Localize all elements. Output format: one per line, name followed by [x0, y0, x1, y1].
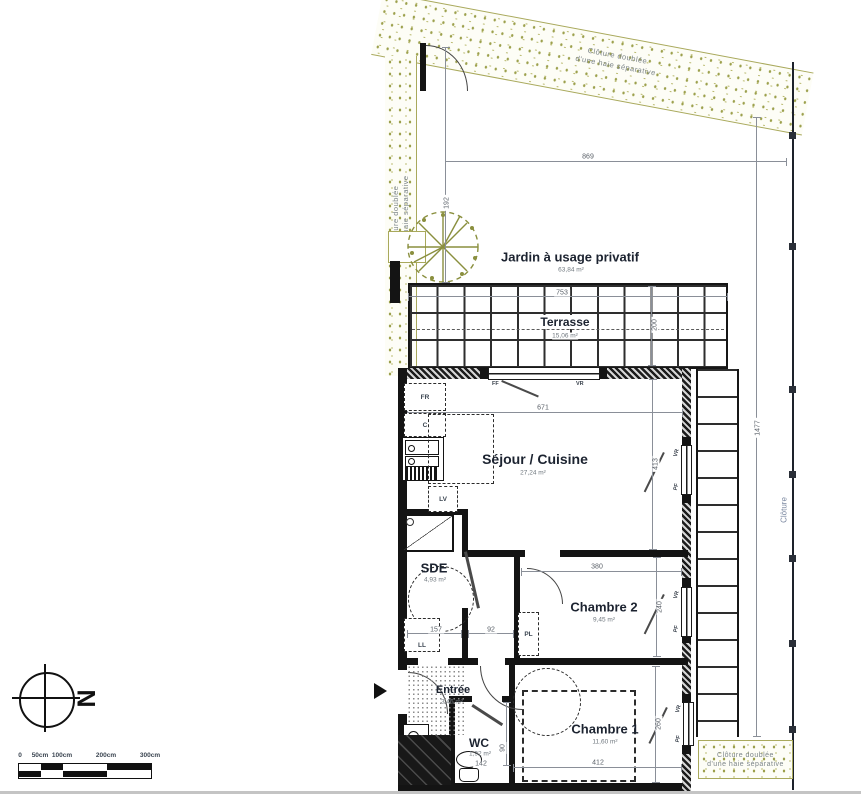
- terrace-centerline: [412, 329, 724, 330]
- wall-right-4: [682, 748, 691, 792]
- compass-circle: [19, 672, 75, 728]
- chambre2-label: Chambre 2: [570, 600, 637, 615]
- sde-label: SDE: [421, 561, 448, 576]
- garden-label: Jardin à usage privatif: [501, 250, 639, 265]
- bay-window-label-ff: FF: [492, 381, 499, 387]
- bay-window-swing: [501, 380, 539, 397]
- fridge-label: FR: [421, 394, 430, 401]
- scale-tick: 0: [18, 752, 22, 759]
- wc-door-leaf: [471, 704, 503, 726]
- entrance-arrow-icon: [374, 683, 387, 699]
- window-jamb: [682, 745, 691, 754]
- cooker-label: C: [423, 422, 428, 429]
- window-label-vr: VR: [673, 449, 681, 458]
- shower-drain: [406, 518, 414, 526]
- fence-post: [789, 555, 796, 562]
- north-letter: N: [71, 689, 100, 707]
- sink-tap-2: [408, 458, 415, 465]
- right-fence-line: [792, 62, 794, 790]
- wall-right-3: [682, 637, 691, 700]
- scale-bar-frame: [18, 763, 152, 779]
- window-jamb: [682, 578, 691, 587]
- bottom-hedge-label-2: d'une haie séparative: [707, 760, 784, 769]
- chambre2-area: 9,45 m²: [593, 617, 615, 624]
- dim-sejour-width: 671: [535, 405, 551, 412]
- window-sejour-east: [681, 445, 692, 495]
- fence-post: [789, 726, 796, 733]
- dim-sejour-width-line: [407, 412, 683, 413]
- dim-ch2-width-line: [521, 571, 682, 572]
- closet-label: PL: [524, 631, 532, 638]
- dim-ch2-width: 380: [589, 564, 605, 571]
- wall-right-2: [682, 495, 691, 587]
- window-chambre1: [683, 702, 694, 746]
- dim-site-height: 1477: [755, 418, 762, 438]
- side-path-tiles: [696, 369, 739, 737]
- window-label-pf: PF: [673, 483, 681, 491]
- wall-hall-south-mid: [448, 658, 478, 665]
- scale-tick: 50cm: [32, 752, 49, 759]
- window-chambre2: [681, 587, 692, 637]
- wc-area: 1,92 m²: [469, 751, 491, 758]
- window-label-vr: VR: [675, 705, 683, 714]
- scale-tick: 300cm: [140, 752, 160, 759]
- washer-box: LL: [404, 618, 440, 652]
- chambre2-door-arc: [527, 568, 563, 604]
- dim-hall-right: 92: [485, 627, 497, 634]
- wall-top-right: [600, 368, 691, 379]
- dim-terrace-depth: 200: [652, 317, 659, 333]
- dim-hall-left: 157: [428, 627, 444, 634]
- dim-gate-offset: 192: [444, 195, 451, 211]
- scale-tick: 200cm: [96, 752, 116, 759]
- dim-wc-width: 142: [473, 761, 489, 768]
- dim-gate-offset-line: [445, 47, 446, 283]
- fence-post: [789, 386, 796, 393]
- entree-area: 3,46 m²: [441, 699, 463, 706]
- bottom-hedge-band: Clôture doublée d'une haie séparative: [698, 740, 793, 779]
- fridge-box: FR: [404, 383, 446, 411]
- toilet-tank: [459, 768, 479, 782]
- fence-post: [789, 243, 796, 250]
- wall-hall-south-left: [398, 658, 418, 665]
- sink-tap-1: [408, 445, 415, 452]
- adjacent-core-zone: [398, 735, 451, 785]
- wall-sejour-south-right: [560, 550, 688, 557]
- wall-right-1: [682, 368, 691, 445]
- terrace-label: Terrasse: [537, 315, 592, 329]
- tree-icon: [402, 206, 484, 288]
- front-door-gap: [398, 668, 407, 716]
- dim-terrace-width: 753: [554, 290, 570, 297]
- washer-label: LL: [418, 642, 426, 649]
- window-label-vr: VR: [673, 591, 681, 600]
- garden-area: 63,84 m²: [558, 267, 584, 274]
- bay-window-sejour: [488, 367, 600, 380]
- dim-ch1-width-line: [513, 767, 682, 768]
- scale-tick: 100cm: [52, 752, 72, 759]
- chambre1-label: Chambre 1: [571, 722, 638, 737]
- window-label-pf: PF: [673, 625, 681, 633]
- dishwasher-label: LV: [439, 496, 447, 503]
- wall-top-left: [398, 368, 488, 379]
- fence-post: [789, 640, 796, 647]
- fence-post: [789, 132, 796, 139]
- entree-label: Entrée: [436, 684, 470, 696]
- sejour-area: 27,24 m²: [520, 470, 546, 477]
- wall-sde-east-top: [462, 509, 468, 552]
- wall-chambre1-north: [505, 658, 688, 665]
- dim-wc-height: 90: [500, 742, 507, 754]
- fence-label: Clôture: [780, 495, 789, 525]
- chambre1-area: 11,60 m²: [592, 739, 617, 746]
- dishwasher-box: LV: [428, 486, 458, 512]
- fence-post: [789, 471, 796, 478]
- dim-ch1-height: 260: [656, 716, 663, 732]
- closet-box: PL: [518, 612, 539, 656]
- dim-site-width-line: [445, 161, 787, 162]
- compass-v-line: [44, 664, 46, 732]
- window-label-pf: PF: [675, 735, 683, 743]
- wc-label: WC: [469, 736, 489, 750]
- sejour-label: Séjour / Cuisine: [482, 451, 588, 467]
- window-jamb: [682, 494, 691, 503]
- dim-sejour-height: 413: [653, 456, 660, 472]
- terrace-area: 15,06 m²: [552, 333, 578, 340]
- hedge-gate-post: [390, 261, 400, 303]
- dim-ch2-height: 240: [657, 599, 664, 615]
- floor-plan: Clôture doublée d'une haie séparative Cl…: [0, 0, 861, 800]
- page-bottom-rule: [0, 791, 861, 794]
- dim-wc-height-line: [506, 702, 507, 766]
- sde-area: 4,93 m²: [424, 577, 446, 584]
- kitchen-counter-outline: [428, 414, 494, 484]
- dim-site-width: 869: [580, 154, 596, 161]
- dim-ch1-width: 412: [590, 760, 606, 767]
- bay-window-label-vr: VR: [576, 381, 584, 387]
- bottom-hedge-label-1: Clôture doublée: [707, 751, 784, 760]
